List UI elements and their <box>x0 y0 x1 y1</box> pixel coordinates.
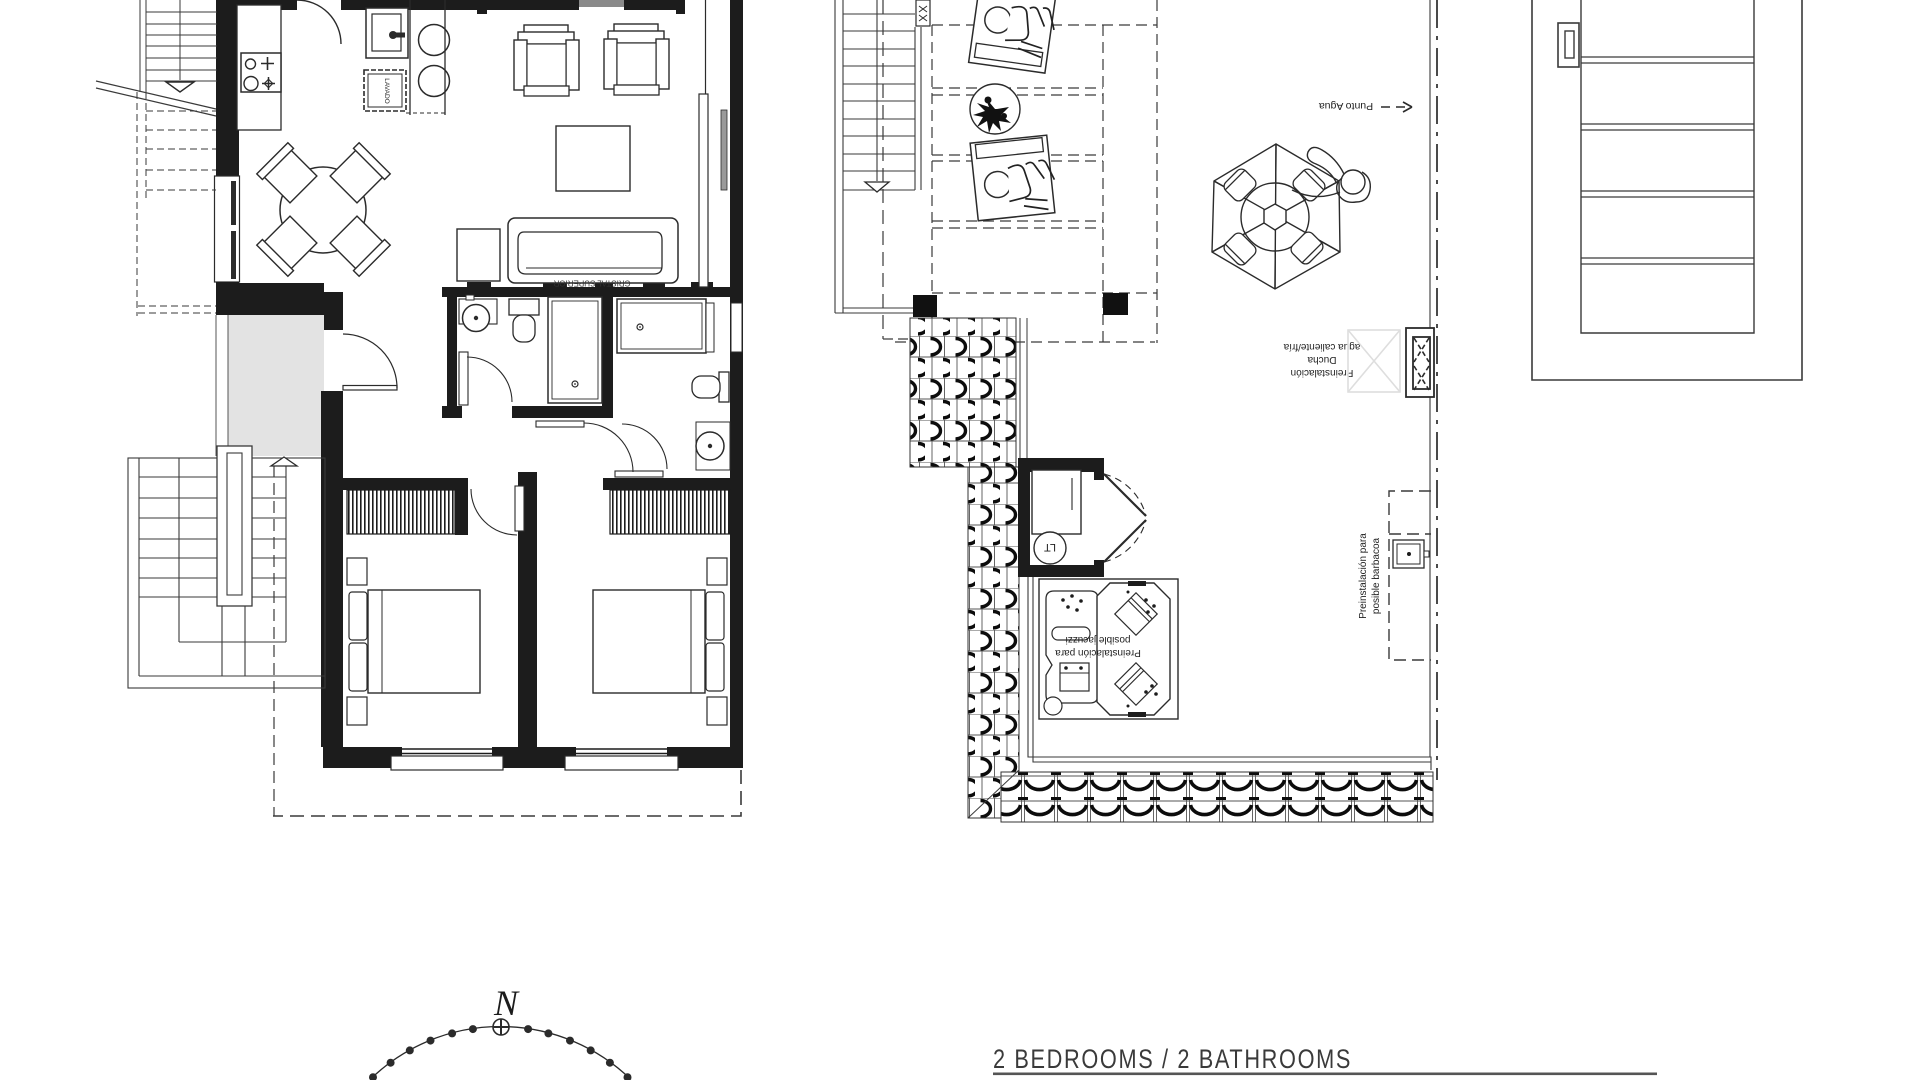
svg-text:Punto Agua: Punto Agua <box>1319 100 1373 112</box>
svg-text:Ducha: Ducha <box>1307 354 1336 365</box>
svg-text:Preinstalación: Preinstalación <box>1291 367 1354 378</box>
svg-text:posible barbacoa: posible barbacoa <box>1371 537 1382 614</box>
svg-text:2 BEDROOMS / 2 BATHROOMS: 2 BEDROOMS / 2 BATHROOMS <box>993 1044 1352 1074</box>
svg-text:posible jacuzzi: posible jacuzzi <box>1065 634 1130 645</box>
svg-text:Preinstalación para: Preinstalación para <box>1055 647 1141 658</box>
svg-text:LT: LT <box>1044 541 1056 553</box>
svg-text:CRISTAL SUPERIOR: CRISTAL SUPERIOR <box>553 279 630 288</box>
svg-text:LAVADO: LAVADO <box>383 78 390 103</box>
svg-text:N: N <box>493 983 520 1023</box>
svg-text:Preinstalación para: Preinstalación para <box>1358 533 1369 619</box>
